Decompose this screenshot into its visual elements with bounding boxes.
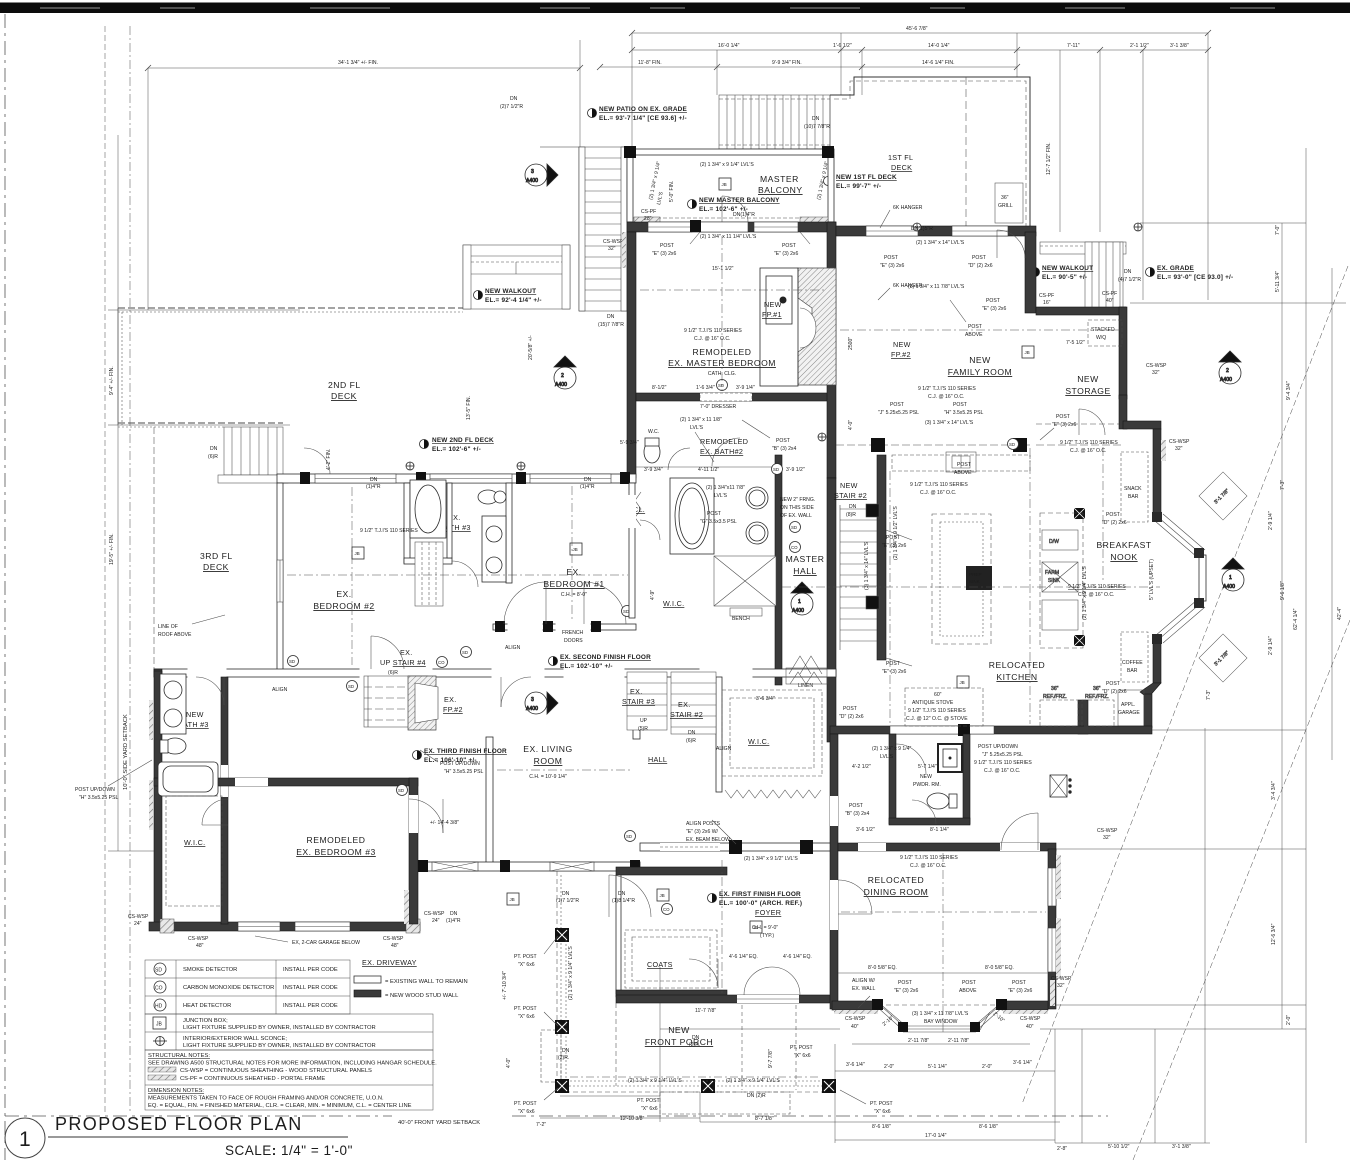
svg-text:DECK: DECK: [891, 163, 912, 172]
svg-text:CS-WSP: CS-WSP: [188, 936, 209, 942]
svg-text:W/Q: W/Q: [1096, 335, 1106, 341]
svg-text:9 1/2" T.J.I'S 110 SERIES: 9 1/2" T.J.I'S 110 SERIES: [684, 328, 742, 334]
svg-text:PT. POST: PT. POST: [514, 1006, 537, 1012]
svg-text:STAIR #2: STAIR #2: [834, 491, 867, 500]
svg-text:JB: JB: [722, 182, 727, 187]
svg-text:2'-9 1/4": 2'-9 1/4": [1268, 636, 1274, 655]
svg-text:DN: DN: [510, 96, 518, 102]
svg-text:KITCHEN: KITCHEN: [996, 672, 1037, 682]
svg-text:SNACK: SNACK: [1124, 486, 1142, 492]
svg-text:BAY WINDOW: BAY WINDOW: [924, 1019, 958, 1025]
svg-text:C.H. = 8'-0": C.H. = 8'-0": [561, 592, 587, 598]
svg-text:POST: POST: [843, 706, 857, 712]
svg-text:SD: SD: [398, 788, 404, 793]
svg-text:3'-6 1/4": 3'-6 1/4": [1013, 1060, 1032, 1066]
svg-text:8'-7 1/8": 8'-7 1/8": [755, 1116, 774, 1122]
svg-text:POST: POST: [707, 511, 721, 517]
svg-text:JB: JB: [573, 547, 578, 552]
svg-text:"D" (2) 2x6: "D" (2) 2x6: [1102, 689, 1127, 695]
svg-text:JB: JB: [355, 551, 360, 556]
svg-text:SD: SD: [348, 684, 354, 689]
svg-text:(1)4"R: (1)4"R: [446, 918, 461, 924]
svg-text:REMODELED: REMODELED: [700, 437, 748, 446]
svg-text:STAIR #2: STAIR #2: [670, 710, 703, 719]
svg-text:"X" 6x6: "X" 6x6: [518, 962, 535, 968]
svg-text:"E" (3) 2x6: "E" (3) 2x6: [882, 669, 906, 675]
svg-text:2'-9 1/4": 2'-9 1/4": [1268, 511, 1274, 530]
svg-text:POST: POST: [884, 255, 898, 261]
svg-text:DN: DN: [618, 891, 626, 897]
svg-text:"E" (3) 2x6: "E" (3) 2x6: [982, 306, 1006, 312]
svg-text:EX. WALL: EX. WALL: [852, 986, 875, 992]
svg-text:CS-WSP: CS-WSP: [128, 914, 149, 920]
svg-text:3: 3: [531, 169, 534, 175]
svg-text:EX. LIVING: EX. LIVING: [523, 744, 572, 754]
svg-text:EX.: EX.: [444, 695, 457, 704]
svg-text:C.J. @ 16" O.C.: C.J. @ 16" O.C.: [928, 394, 964, 400]
svg-text:W.I.C.: W.I.C.: [184, 838, 205, 847]
svg-text:(2) 1 3/4" x 9 1/4" LVL'S: (2) 1 3/4" x 9 1/4" LVL'S: [700, 162, 754, 168]
svg-text:SD: SD: [1009, 442, 1015, 447]
svg-text:12'-7 1/2" FIN.: 12'-7 1/2" FIN.: [1046, 142, 1052, 175]
svg-text:32": 32": [1152, 370, 1160, 376]
svg-text:"X" 6x6: "X" 6x6: [518, 1109, 535, 1115]
svg-text:(3) 1 3/4" x 14" LVL'S: (3) 1 3/4" x 14" LVL'S: [864, 541, 870, 590]
svg-text:(6)R: (6)R: [388, 670, 398, 676]
svg-text:EX. BATH#2: EX. BATH#2: [700, 447, 743, 456]
svg-text:A400: A400: [792, 608, 804, 614]
svg-text:9 1/2" T.J.I'S 110 SERIES: 9 1/2" T.J.I'S 110 SERIES: [918, 386, 976, 392]
svg-text:5'-1 1/4": 5'-1 1/4": [928, 1064, 947, 1070]
svg-text:FP.#2: FP.#2: [443, 705, 463, 714]
svg-text:EX. BEAM BELOW: EX. BEAM BELOW: [686, 837, 730, 843]
svg-text:SD: SD: [791, 525, 797, 530]
svg-text:9 1/2" T.J.I'S 110 SERIES: 9 1/2" T.J.I'S 110 SERIES: [360, 528, 418, 534]
svg-text:SD: SD: [623, 609, 629, 614]
svg-text:NEW: NEW: [840, 481, 858, 490]
svg-text:BALCONY: BALCONY: [758, 185, 803, 195]
svg-text:"B" (3) 2x4: "B" (3) 2x4: [772, 446, 796, 452]
svg-text:DN: DN: [607, 314, 615, 320]
svg-text:NOOK: NOOK: [1110, 552, 1137, 562]
svg-text:JB: JB: [510, 897, 515, 902]
svg-text:DN: DN: [812, 116, 820, 122]
svg-text:DIMENSION NOTES:: DIMENSION NOTES:: [148, 1088, 204, 1094]
svg-text:DN (2)R: DN (2)R: [747, 1093, 766, 1099]
svg-text:19'-5" +/- FIN.: 19'-5" +/- FIN.: [109, 533, 115, 565]
svg-text:6K HANGER: 6K HANGER: [893, 205, 923, 211]
svg-text:9 1/2" T.J.I'S 110 SERIES: 9 1/2" T.J.I'S 110 SERIES: [908, 708, 966, 714]
svg-text:LIGHT FIXTURE SUPPLIED BY OWNE: LIGHT FIXTURE SUPPLIED BY OWNER, INSTALL…: [183, 1025, 376, 1031]
svg-text:W.I.C.: W.I.C.: [748, 737, 769, 746]
svg-text:1ST FL: 1ST FL: [888, 153, 913, 162]
svg-text:2ND FL: 2ND FL: [328, 380, 361, 390]
svg-text:3'-4 3/4": 3'-4 3/4": [1271, 781, 1277, 800]
svg-text:INSTALL PER CODE: INSTALL PER CODE: [283, 967, 338, 973]
svg-text:+/- 14'-4 3/8": +/- 14'-4 3/8": [430, 820, 459, 826]
svg-text:5'-0" FIN.: 5'-0" FIN.: [669, 181, 675, 202]
svg-text:8'-1/2": 8'-1/2": [652, 385, 667, 391]
svg-text:9 1/2" T.J.I'S 110 SERIES: 9 1/2" T.J.I'S 110 SERIES: [900, 855, 958, 861]
svg-text:24": 24": [134, 921, 142, 927]
svg-text:(2)7 1/2"R: (2)7 1/2"R: [500, 104, 523, 110]
svg-text:MASTER: MASTER: [786, 554, 825, 564]
svg-text:16": 16": [1043, 300, 1051, 306]
svg-text:SD: SD: [626, 834, 632, 839]
svg-text:36": 36": [1001, 195, 1009, 201]
svg-text:HALL: HALL: [648, 755, 667, 764]
svg-text:OF EX. WALL: OF EX. WALL: [780, 513, 812, 519]
svg-text:POST UP/DOWN: POST UP/DOWN: [440, 761, 480, 767]
svg-text:9'-4 3/4": 9'-4 3/4": [1286, 381, 1292, 400]
svg-text:POST: POST: [849, 803, 863, 809]
svg-text:32": 32": [1103, 835, 1111, 841]
svg-text:42'-4": 42'-4": [1337, 607, 1343, 620]
svg-text:ROOM: ROOM: [534, 756, 563, 766]
svg-text:DINING ROOM: DINING ROOM: [864, 887, 929, 897]
svg-text:(8)R: (8)R: [846, 512, 856, 518]
svg-text:(3) 1 3/4" x 11 7/8" LVL'S: (3) 1 3/4" x 11 7/8" LVL'S: [908, 284, 965, 290]
svg-text:NEW PATIO ON EX. GRADE: NEW PATIO ON EX. GRADE: [599, 106, 687, 113]
svg-text:24": 24": [432, 918, 440, 924]
svg-text:(15)7 7/8"R: (15)7 7/8"R: [598, 322, 624, 328]
svg-text:DN: DN: [562, 1048, 570, 1054]
svg-text:40": 40": [851, 1024, 859, 1030]
svg-text:INTERIOR/EXTERIOR WALL SCONCE;: INTERIOR/EXTERIOR WALL SCONCE;: [183, 1036, 287, 1042]
svg-text:3'-9 1/4": 3'-9 1/4": [736, 385, 755, 391]
svg-text:BAR: BAR: [1127, 668, 1138, 674]
svg-text:36": 36": [1051, 686, 1059, 692]
svg-text:NEW: NEW: [1077, 374, 1099, 384]
svg-text:CS-PF: CS-PF: [1039, 293, 1054, 299]
svg-text:SCALE: 1/4" = 1'-0": SCALE: 1/4" = 1'-0": [225, 1143, 353, 1158]
svg-text:40": 40": [1106, 298, 1114, 304]
svg-text:7'-0" DRESSER: 7'-0" DRESSER: [700, 404, 737, 410]
svg-text:LVL'S: LVL'S: [690, 425, 704, 431]
svg-text:"X" 6x6: "X" 6x6: [874, 1109, 891, 1115]
svg-text:11'-7 7/8": 11'-7 7/8": [695, 1008, 716, 1014]
svg-text:7'-2": 7'-2": [536, 1122, 546, 1128]
svg-text:STRUCTURAL NOTES:: STRUCTURAL NOTES:: [148, 1053, 210, 1059]
svg-text:POST: POST: [782, 243, 796, 249]
svg-text:10'-0" SIDE YARD SETBACK: 10'-0" SIDE YARD SETBACK: [123, 714, 129, 790]
svg-text:EL.= 90'-5" +/-: EL.= 90'-5" +/-: [1042, 274, 1087, 281]
svg-text:(2) 1 3/4" x 9 1/2" LVL'S: (2) 1 3/4" x 9 1/2" LVL'S: [744, 856, 798, 862]
svg-text:4'-2 1/2": 4'-2 1/2": [852, 764, 871, 770]
svg-text:1: 1: [19, 1128, 31, 1151]
svg-text:NEW: NEW: [920, 774, 932, 780]
svg-text:A400: A400: [1223, 584, 1235, 590]
svg-text:ALIGN POSTS: ALIGN POSTS: [686, 821, 721, 827]
svg-text:EL.= 93'-7 1/4" [CE 93.6] +/-: EL.= 93'-7 1/4" [CE 93.6] +/-: [599, 115, 687, 122]
svg-text:POST: POST: [660, 243, 674, 249]
svg-text:1: 1: [1229, 575, 1232, 581]
svg-text:8'-1 1/4": 8'-1 1/4": [930, 827, 949, 833]
svg-text:ABOVE: ABOVE: [965, 332, 983, 338]
svg-text:PWDR. RM.: PWDR. RM.: [913, 782, 941, 788]
svg-text:"X" 6x6: "X" 6x6: [518, 1014, 535, 1020]
svg-text:9'-9 3/4" FIN.: 9'-9 3/4" FIN.: [772, 60, 802, 66]
svg-text:CARBON MONOXIDE DETECTOR: CARBON MONOXIDE DETECTOR: [183, 985, 274, 991]
svg-text:EQ. = EQUAL, FIN. = FINISHED M: EQ. = EQUAL, FIN. = FINISHED MATERIAL, C…: [148, 1103, 412, 1109]
svg-text:BEDROOM #2: BEDROOM #2: [313, 601, 374, 611]
svg-text:EX, 2-CAR GARAGE BELOW: EX, 2-CAR GARAGE BELOW: [292, 940, 360, 946]
svg-text:"E" (3) 2x6: "E" (3) 2x6: [774, 251, 798, 257]
svg-text:(3) 1 3/4" x 11 7/8" LVL'S: (3) 1 3/4" x 11 7/8" LVL'S: [912, 1011, 969, 1017]
svg-text:STORAGE: STORAGE: [1065, 386, 1110, 396]
svg-text:2'-11 7/8": 2'-11 7/8": [908, 1038, 929, 1044]
svg-text:2500": 2500": [848, 337, 854, 350]
svg-text:SEE DRAWING A500 STRUCTURAL NO: SEE DRAWING A500 STRUCTURAL NOTES FOR MO…: [148, 1061, 437, 1067]
svg-text:DECK: DECK: [203, 562, 229, 572]
svg-text:SINK: SINK: [1048, 578, 1060, 584]
svg-text:NEW: NEW: [668, 1025, 690, 1035]
svg-text:60": 60": [934, 692, 942, 698]
svg-text:(2) 1 3/4" x 9 1/4" LVL'S: (2) 1 3/4" x 9 1/4" LVL'S: [1082, 566, 1088, 620]
svg-text:DN: DN: [370, 477, 378, 483]
svg-text:POST: POST: [776, 438, 790, 444]
svg-text:(2) 1 3/4" x 9 1/4" LVL'S: (2) 1 3/4" x 9 1/4" LVL'S: [568, 946, 574, 1000]
svg-text:DN: DN: [692, 1035, 700, 1041]
svg-text:EL.= 99'-7" +/-: EL.= 99'-7" +/-: [836, 183, 881, 190]
svg-text:40'-0" FRONT YARD SETBACK: 40'-0" FRONT YARD SETBACK: [398, 1120, 480, 1126]
svg-text:4'-9": 4'-9": [650, 590, 656, 600]
svg-text:SD: SD: [773, 467, 779, 472]
svg-text:(1)8 1/4"R: (1)8 1/4"R: [612, 898, 635, 904]
svg-text:45'-6 7/8": 45'-6 7/8": [906, 26, 928, 32]
svg-text:EX.: EX.: [678, 700, 691, 709]
svg-text:"G" 3.5x3.5 PSL: "G" 3.5x3.5 PSL: [700, 519, 737, 525]
svg-text:5'-7 1/4": 5'-7 1/4": [918, 764, 937, 770]
svg-text:POST: POST: [972, 255, 986, 261]
svg-text:DN: DN: [450, 911, 458, 917]
svg-text:LVL'S: LVL'S: [714, 493, 728, 499]
svg-text:NEW: NEW: [764, 300, 782, 309]
svg-text:PREP: PREP: [969, 572, 982, 577]
svg-text:9'-4" +/- FIN.: 9'-4" +/- FIN.: [109, 366, 115, 395]
svg-text:ON THIS SIDE: ON THIS SIDE: [780, 505, 814, 511]
svg-text:HD: HD: [155, 1004, 163, 1010]
svg-text:3RD FL: 3RD FL: [200, 551, 233, 561]
svg-text:JB: JB: [753, 925, 758, 930]
svg-text:A400: A400: [526, 178, 538, 184]
svg-text:JB: JB: [156, 1022, 163, 1028]
svg-text:APPL.: APPL.: [1121, 702, 1135, 708]
svg-text:2'-11 7/8": 2'-11 7/8": [948, 1038, 969, 1044]
svg-text:COFFEE: COFFEE: [1122, 660, 1143, 666]
svg-text:POST: POST: [962, 980, 976, 986]
svg-text:JB: JB: [960, 680, 965, 685]
svg-text:LVL'S: LVL'S: [880, 754, 894, 760]
svg-text:NEW 2" FRNG.: NEW 2" FRNG.: [780, 497, 815, 503]
svg-text:(2) 1 3/4" x 11 1/4" LVL'S: (2) 1 3/4" x 11 1/4" LVL'S: [700, 234, 757, 240]
svg-text:14'-6 1/4" FIN.: 14'-6 1/4" FIN.: [922, 60, 955, 66]
svg-text:EX.: EX.: [400, 648, 413, 657]
svg-text:FRONT PORCH: FRONT PORCH: [645, 1037, 713, 1047]
svg-text:2'-0": 2'-0": [1286, 1015, 1292, 1025]
svg-text:EX. DRIVEWAY: EX. DRIVEWAY: [362, 958, 417, 967]
svg-text:(1)4"R: (1)4"R: [580, 484, 595, 490]
svg-text:"X" 6x6: "X" 6x6: [641, 1106, 658, 1112]
svg-text:14'-0 1/4": 14'-0 1/4": [928, 43, 950, 49]
svg-text:"E" (3) 2x6: "E" (3) 2x6: [1008, 988, 1032, 994]
svg-text:POST: POST: [1012, 980, 1026, 986]
svg-text:BREAKFAST: BREAKFAST: [1096, 540, 1151, 550]
svg-text:NEW WALKOUT: NEW WALKOUT: [1042, 265, 1093, 272]
svg-text:CS-WSP: CS-WSP: [1051, 976, 1072, 982]
svg-text:4'-0": 4'-0": [506, 1058, 512, 1068]
svg-text:EL.= 92'-4 1/4" +/-: EL.= 92'-4 1/4" +/-: [485, 297, 542, 304]
svg-text:+/- 7'-10 3/4": +/- 7'-10 3/4": [502, 971, 508, 1000]
svg-text:W.C.: W.C.: [648, 429, 659, 435]
svg-text:DN: DN: [688, 730, 696, 736]
svg-text:12'-10 3/8": 12'-10 3/8": [620, 1116, 644, 1122]
svg-text:12'-6 3/4": 12'-6 3/4": [1271, 923, 1277, 945]
svg-text:PT. POST: PT. POST: [514, 954, 537, 960]
svg-text:ALIGN: ALIGN: [505, 645, 521, 651]
svg-text:ANTIQUE STOVE: ANTIQUE STOVE: [912, 700, 954, 706]
svg-text:3'-1 3/8": 3'-1 3/8": [1170, 43, 1189, 49]
svg-text:PT. POST: PT. POST: [790, 1045, 813, 1051]
svg-text:"D" (2) 2x6: "D" (2) 2x6: [968, 263, 993, 269]
svg-text:4'-2" FIN.: 4'-2" FIN.: [326, 449, 332, 470]
svg-text:7'-3": 7'-3": [1280, 480, 1286, 490]
svg-text:(10)7 7/8"R: (10)7 7/8"R: [804, 124, 830, 130]
svg-text:40": 40": [1026, 1024, 1034, 1030]
svg-text:4'-6 1/4" EQ.: 4'-6 1/4" EQ.: [783, 954, 812, 960]
svg-text:"J" 5.25x5.25 PSL: "J" 5.25x5.25 PSL: [982, 752, 1023, 758]
svg-text:5" LVL'S (UPSET): 5" LVL'S (UPSET): [1149, 559, 1155, 600]
svg-text:RELOCATED: RELOCATED: [989, 660, 1045, 670]
svg-text:POST: POST: [898, 980, 912, 986]
svg-text:"H" 3.5x5.25 PSL: "H" 3.5x5.25 PSL: [79, 795, 118, 801]
svg-text:9 1/2" T.J.I'S 110 SERIES: 9 1/2" T.J.I'S 110 SERIES: [974, 760, 1032, 766]
svg-text:SMOKE DETECTOR: SMOKE DETECTOR: [183, 967, 237, 973]
svg-text:"B" (3) 2x4: "B" (3) 2x4: [845, 811, 869, 817]
svg-text:REMODELED: REMODELED: [307, 835, 366, 845]
svg-text:C.J. @ 12" O.C. @ STOVE: C.J. @ 12" O.C. @ STOVE: [906, 716, 968, 722]
svg-text:EX. SECOND FINISH FLOOR: EX. SECOND FINISH FLOOR: [560, 654, 651, 661]
svg-text:SD: SD: [155, 968, 162, 974]
svg-text:5'-9 3/4": 5'-9 3/4": [620, 440, 639, 446]
svg-text:NEW: NEW: [186, 710, 204, 719]
svg-text:EL.= 93'-0" [CE 93.0] +/-: EL.= 93'-0" [CE 93.0] +/-: [1157, 274, 1233, 281]
svg-text:7'-3": 7'-3": [1206, 690, 1212, 700]
svg-text:8'-0 5/8" EQ.: 8'-0 5/8" EQ.: [985, 965, 1014, 971]
svg-text:8'-6 1/8": 8'-6 1/8": [979, 1124, 998, 1130]
svg-text:3'-6 3/4": 3'-6 3/4": [756, 696, 775, 702]
svg-text:FP.#1: FP.#1: [762, 310, 782, 319]
svg-text:C.J. @ 16" O.C.: C.J. @ 16" O.C.: [694, 336, 730, 342]
svg-text:(6)R: (6)R: [686, 738, 696, 744]
svg-text:8'-0 5/8" EQ.: 8'-0 5/8" EQ.: [868, 965, 897, 971]
svg-text:POST: POST: [890, 402, 904, 408]
svg-text:PT. POST: PT. POST: [637, 1098, 660, 1104]
svg-text:(2) 1 3/4"x11 7/8": (2) 1 3/4"x11 7/8": [706, 485, 745, 491]
svg-text:EX. FIRST FINISH FLOOR: EX. FIRST FINISH FLOOR: [719, 891, 801, 898]
svg-text:CO: CO: [438, 660, 445, 665]
svg-text:C.J. @ 16" O.C.: C.J. @ 16" O.C.: [984, 768, 1020, 774]
svg-text:ALIGN: ALIGN: [272, 687, 288, 693]
svg-text:2'-8": 2'-8": [1057, 1146, 1067, 1152]
svg-text:(6)R: (6)R: [208, 454, 218, 460]
svg-text:UP: UP: [640, 718, 648, 724]
svg-text:POST UP/DOWN: POST UP/DOWN: [75, 787, 115, 793]
svg-text:"D" (2) 2x6: "D" (2) 2x6: [1102, 520, 1127, 526]
svg-text:LINE OF: LINE OF: [158, 624, 178, 630]
svg-text:5'-11 3/4": 5'-11 3/4": [1275, 271, 1281, 292]
svg-text:20'-5/8" +/-: 20'-5/8" +/-: [528, 335, 534, 360]
svg-text:"E" (3) 2x6: "E" (3) 2x6: [652, 251, 676, 257]
svg-text:BAR: BAR: [1128, 494, 1139, 500]
svg-text:2: 2: [561, 373, 564, 379]
svg-text:CS-WSP: CS-WSP: [603, 239, 624, 245]
svg-text:3'-6 1/2": 3'-6 1/2": [856, 827, 875, 833]
svg-text:CO: CO: [663, 907, 670, 912]
svg-text:HALL: HALL: [793, 566, 817, 576]
svg-text:EX.: EX.: [566, 567, 581, 577]
svg-text:EL.= 100'-0" (ARCH. REF.): EL.= 100'-0" (ARCH. REF.): [719, 900, 802, 907]
svg-text:EL.= 102'-6" +/-: EL.= 102'-6" +/-: [432, 446, 481, 453]
svg-text:2: 2: [1226, 368, 1229, 374]
svg-text:2'-0": 2'-0": [982, 1064, 992, 1070]
svg-text:DN(1)5"R: DN(1)5"R: [911, 226, 933, 232]
svg-text:BENCH: BENCH: [732, 616, 750, 622]
svg-text:POST: POST: [957, 462, 971, 468]
svg-text:DN: DN: [210, 446, 218, 452]
svg-text:(1)7 1/2"R: (1)7 1/2"R: [556, 898, 579, 904]
svg-text:INSTALL PER CODE: INSTALL PER CODE: [283, 985, 338, 991]
svg-text:ABOVE: ABOVE: [954, 470, 972, 476]
svg-text:REF./FRZ.: REF./FRZ.: [1043, 694, 1067, 700]
svg-text:CS-PF = CONTINUOUS SHEATHED: CS-PF = CONTINUOUS SHEATHED - PORTAL FRA…: [180, 1076, 325, 1082]
svg-text:C.J. @ 16" O.C.: C.J. @ 16" O.C.: [920, 490, 956, 496]
svg-text:FP.#2: FP.#2: [891, 350, 911, 359]
svg-text:(2) 1 3/4" x 11 1/8": (2) 1 3/4" x 11 1/8": [680, 417, 722, 423]
svg-text:34'-1 3/4" +/- FIN.: 34'-1 3/4" +/- FIN.: [338, 60, 378, 66]
svg-text:ROOF ABOVE: ROOF ABOVE: [158, 632, 192, 638]
svg-text:(1)4"R: (1)4"R: [366, 484, 381, 490]
svg-text:CS-PF: CS-PF: [1102, 291, 1117, 297]
svg-text:HEAT DETECTOR: HEAT DETECTOR: [183, 1003, 231, 1009]
svg-text:EX.: EX.: [630, 687, 643, 696]
svg-text:3'-9 3/4": 3'-9 3/4": [644, 467, 663, 473]
svg-text:W.I.C.: W.I.C.: [663, 599, 684, 608]
svg-text:EX. THIRD FINISH FLOOR: EX. THIRD FINISH FLOOR: [424, 748, 507, 755]
svg-text:"E" (3) 2x6: "E" (3) 2x6: [1052, 422, 1076, 428]
svg-text:9'-6 1/8": 9'-6 1/8": [1280, 581, 1286, 600]
svg-text:SD: SD: [718, 383, 724, 388]
svg-text:INSTALL PER CODE: INSTALL PER CODE: [283, 1003, 338, 1009]
svg-text:3'-9 1/2": 3'-9 1/2": [786, 467, 805, 473]
svg-text:JUNCTION BOX;: JUNCTION BOX;: [183, 1018, 228, 1024]
svg-text:15'-1 1/2": 15'-1 1/2": [712, 266, 734, 272]
svg-text:C.J. @ 16" O.C.: C.J. @ 16" O.C.: [910, 863, 946, 869]
svg-text:PT. POST: PT. POST: [870, 1101, 893, 1107]
svg-text:"E" (3) 2x6: "E" (3) 2x6: [894, 988, 918, 994]
svg-text:CS-WSP: CS-WSP: [1146, 363, 1167, 369]
svg-text:2'-1 1/2": 2'-1 1/2": [1130, 43, 1149, 49]
svg-text:CS-WSP: CS-WSP: [383, 936, 404, 942]
svg-text:POST: POST: [986, 298, 1000, 304]
svg-text:NEW: NEW: [969, 355, 991, 365]
svg-text:(5)R: (5)R: [638, 726, 648, 732]
svg-text:NEW 1ST FL DECK: NEW 1ST FL DECK: [836, 174, 897, 181]
svg-text:DECK: DECK: [331, 391, 357, 401]
svg-text:CS-PF: CS-PF: [641, 209, 656, 215]
svg-text:2'-0": 2'-0": [884, 1064, 894, 1070]
svg-text:(3) 1 3/4" x 14" LVL'S: (3) 1 3/4" x 14" LVL'S: [925, 420, 974, 426]
